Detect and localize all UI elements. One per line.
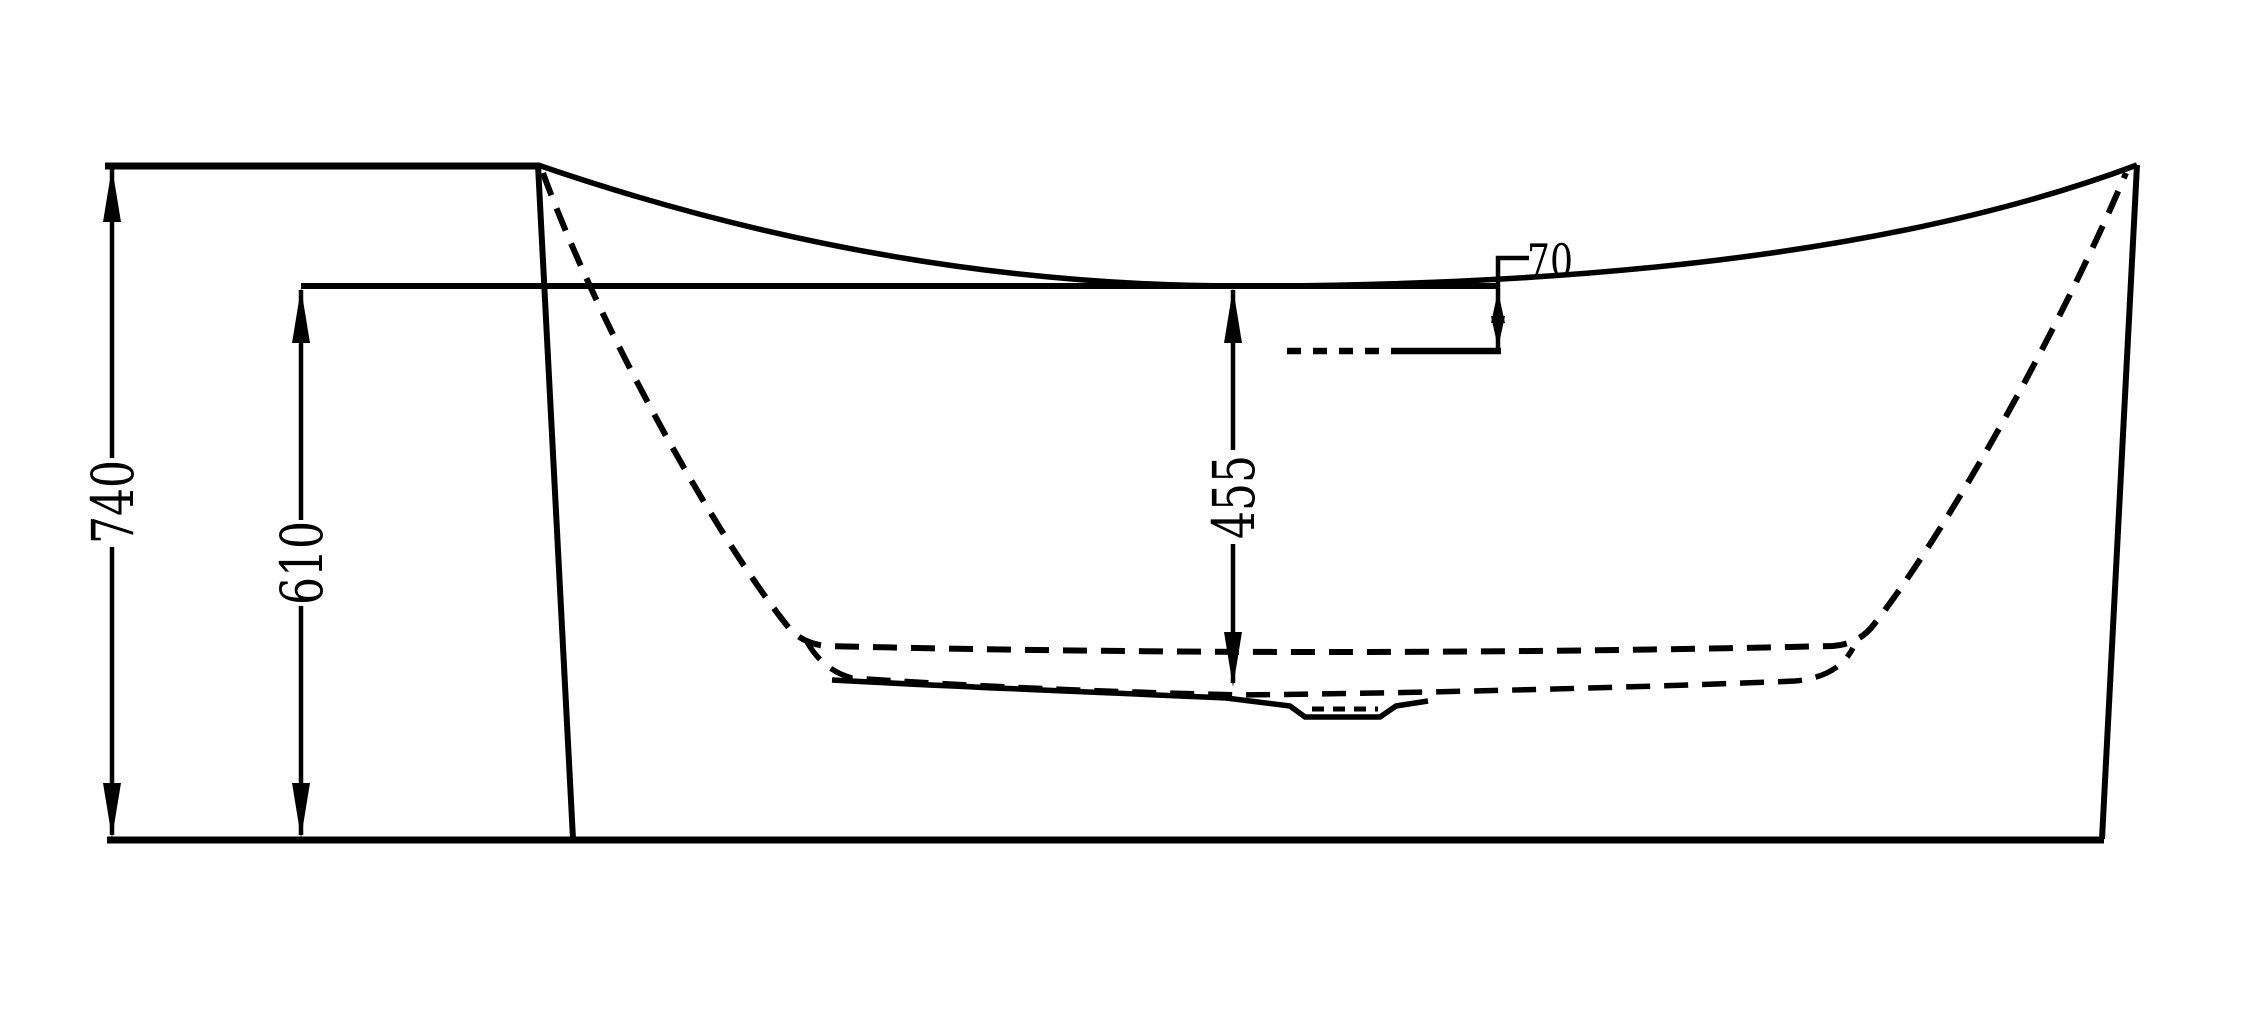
dim-455-arrow-top [1224, 288, 1242, 343]
dim-740-arrow-bottom [103, 783, 121, 838]
dim-740-arrow-top [103, 167, 121, 222]
dim-70-leader [1498, 258, 1529, 351]
dim-610-arrow-bottom [292, 783, 310, 838]
dim-610-arrow-top [292, 288, 310, 343]
dim-455: 455 [1200, 288, 1268, 687]
dim-740: 740 [79, 167, 147, 838]
dim-740-label: 740 [79, 460, 147, 544]
dim-70-label: 70 [1527, 234, 1573, 288]
dim-610-label: 610 [268, 521, 336, 605]
tub-rim-curve [538, 165, 2137, 286]
dim-455-arrow-bottom [1224, 632, 1242, 687]
tub-right-outer-wall [2102, 165, 2137, 839]
dim-455-label: 455 [1200, 455, 1268, 539]
inner-wall-dashed [543, 173, 2126, 652]
bathtub-dimension-drawing: 740 610 455 70 [0, 0, 2262, 1034]
dim-610: 610 [268, 288, 336, 838]
tub-left-outer-wall [538, 165, 573, 839]
dim-70-arrow-down [1491, 316, 1505, 348]
drawing-canvas: 740 610 455 70 [0, 0, 2262, 1034]
dim-70: 70 [1287, 234, 1573, 351]
